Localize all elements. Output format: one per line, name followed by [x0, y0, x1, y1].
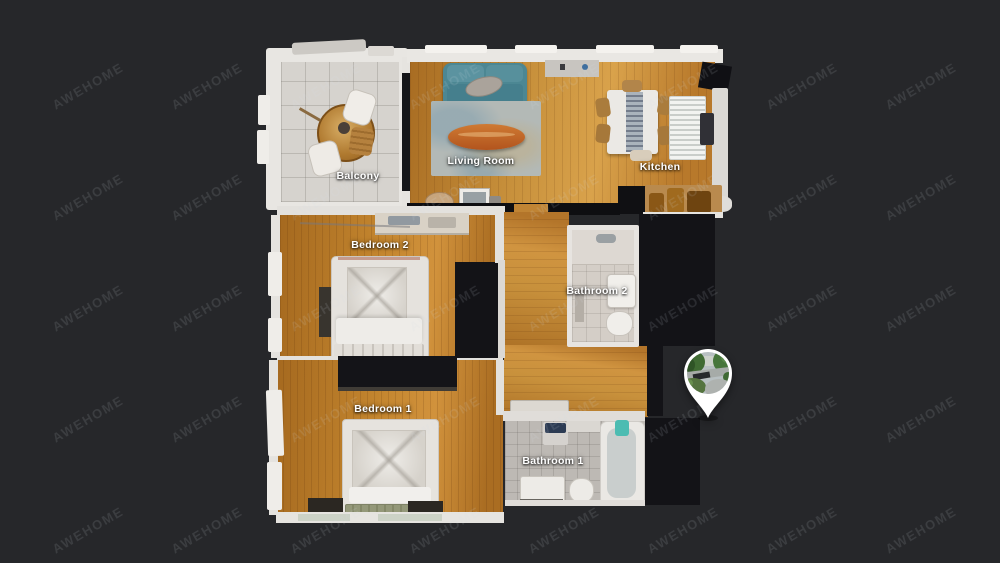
corridor-left-wall	[498, 260, 505, 358]
bedroom1-window-frame	[267, 462, 282, 510]
unscanned-area	[639, 214, 715, 346]
shower-fixture	[596, 234, 616, 243]
kitchen-appliance	[700, 113, 714, 145]
dining-chair	[630, 150, 652, 161]
counter-jar	[687, 191, 711, 213]
balcony-window-frame	[258, 95, 270, 125]
shelf-items	[428, 217, 456, 228]
bed2-blanket-line	[338, 257, 420, 260]
shelf-items	[388, 216, 420, 225]
bedroom2-window-frame	[268, 252, 282, 296]
table-runner	[626, 92, 643, 152]
counter-jar	[649, 193, 664, 213]
floorplan-viewer[interactable]: AWEHOMEAWEHOMEAWEHOMEAWEHOMEAWEHOMEAWEHO…	[0, 0, 1000, 563]
wardrobe-edge	[338, 387, 457, 391]
bathroom1-bottom-wall	[505, 500, 645, 506]
window-sill	[425, 45, 487, 53]
balcony-kettle	[338, 122, 350, 134]
bedroom1-window-frame	[266, 390, 284, 457]
window-sill	[515, 45, 557, 53]
corridor-top-wall	[563, 203, 620, 215]
bath-accessory-teal	[615, 420, 629, 436]
bedroom2-window-frame	[268, 318, 282, 352]
bedroom1-wardrobe	[338, 356, 457, 390]
bottom-window-glass	[378, 514, 442, 521]
corridor-floor	[504, 212, 569, 348]
dining-chair	[595, 97, 612, 118]
bedroom1-right-wall	[496, 360, 504, 415]
bed1-duvet	[352, 430, 426, 488]
bed2-duvet	[347, 267, 407, 323]
bottom-window-glass	[298, 514, 350, 521]
location-pin-marker[interactable]	[681, 347, 735, 421]
balcony-scan-debris	[368, 46, 394, 56]
unscanned-area	[645, 418, 700, 505]
counter-jar	[667, 188, 684, 213]
window-sill	[680, 45, 718, 53]
kitchen-wall-chunk	[618, 186, 646, 214]
coffee-table	[448, 124, 525, 150]
window-shelf	[545, 60, 599, 77]
bed2-sheet-fold	[336, 318, 422, 344]
dining-chair	[622, 80, 642, 92]
floorplan[interactable]	[0, 0, 1000, 563]
washing-machine-top	[545, 423, 566, 433]
unscanned-area	[647, 346, 663, 416]
shelf-item-dark	[560, 64, 565, 70]
coffee-table-highlight	[458, 132, 515, 137]
dining-chair	[595, 123, 611, 143]
bathroom2-sink	[607, 274, 636, 308]
bedroom2-right-wall	[495, 213, 504, 263]
shelf-item-blue	[582, 64, 588, 70]
bathroom1-counter	[567, 421, 600, 432]
balcony-window-frame	[257, 130, 269, 164]
bathtub-basin	[607, 428, 636, 498]
window-sill	[596, 45, 654, 53]
bathroom2-toilet	[606, 311, 633, 336]
bathroom2-radiator	[575, 288, 584, 322]
balcony-wood-chair	[348, 127, 375, 157]
balcony-door-wall	[402, 57, 410, 209]
bed2-nightstand	[319, 287, 331, 337]
